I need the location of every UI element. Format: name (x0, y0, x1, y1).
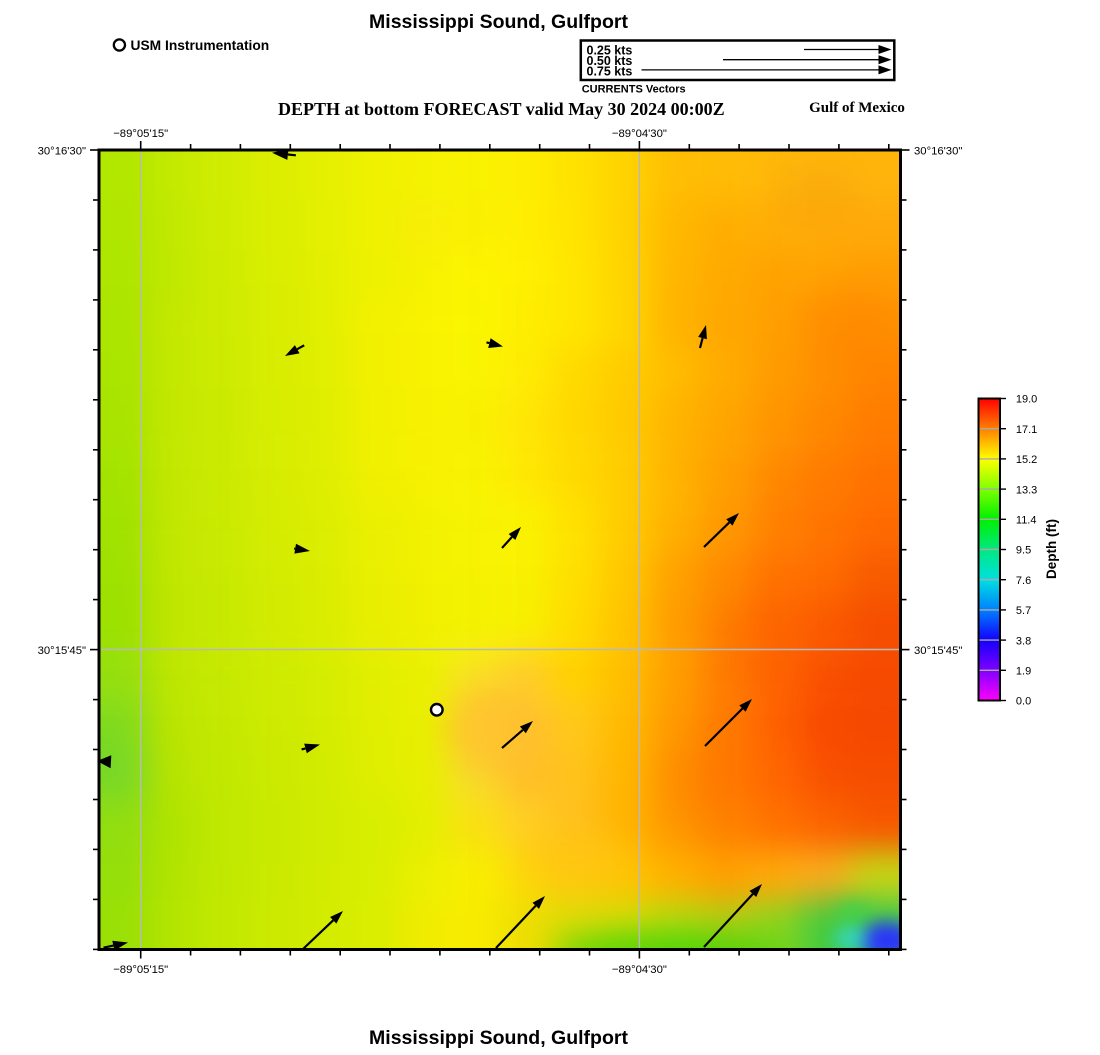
svg-text:USM Instrumentation: USM Instrumentation (131, 38, 270, 53)
svg-text:DEPTH at bottom FORECAST valid: DEPTH at bottom FORECAST valid May 30 20… (278, 99, 725, 119)
svg-text:30°15'45": 30°15'45" (914, 645, 962, 657)
svg-text:30°15'45": 30°15'45" (38, 645, 86, 657)
svg-text:3.8: 3.8 (1016, 635, 1031, 647)
svg-text:9.5: 9.5 (1016, 545, 1031, 557)
svg-text:19.0: 19.0 (1016, 394, 1037, 406)
svg-text:Gulf of Mexico: Gulf of Mexico (809, 100, 905, 116)
svg-text:−89°04'30": −89°04'30" (612, 964, 667, 976)
svg-text:30°16'30": 30°16'30" (38, 146, 86, 158)
svg-text:5.7: 5.7 (1016, 605, 1031, 617)
svg-text:−89°04'30": −89°04'30" (612, 128, 667, 140)
svg-text:0.0: 0.0 (1016, 696, 1031, 708)
svg-text:11.4: 11.4 (1016, 515, 1037, 527)
svg-text:Mississippi Sound, Gulfport: Mississippi Sound, Gulfport (369, 1027, 628, 1049)
svg-text:15.2: 15.2 (1016, 454, 1037, 466)
svg-text:Depth (ft): Depth (ft) (1044, 519, 1059, 579)
svg-text:13.3: 13.3 (1016, 484, 1037, 496)
svg-text:−89°05'15": −89°05'15" (113, 128, 168, 140)
svg-text:−89°05'15": −89°05'15" (113, 964, 168, 976)
svg-text:0.75 kts: 0.75 kts (587, 65, 633, 79)
svg-text:7.6: 7.6 (1016, 575, 1031, 587)
svg-text:Mississippi Sound, Gulfport: Mississippi Sound, Gulfport (369, 11, 628, 33)
svg-text:17.1: 17.1 (1016, 424, 1037, 436)
svg-text:30°16'30": 30°16'30" (914, 146, 962, 158)
svg-text:CURRENTS Vectors: CURRENTS Vectors (582, 84, 686, 96)
svg-text:1.9: 1.9 (1016, 666, 1031, 678)
